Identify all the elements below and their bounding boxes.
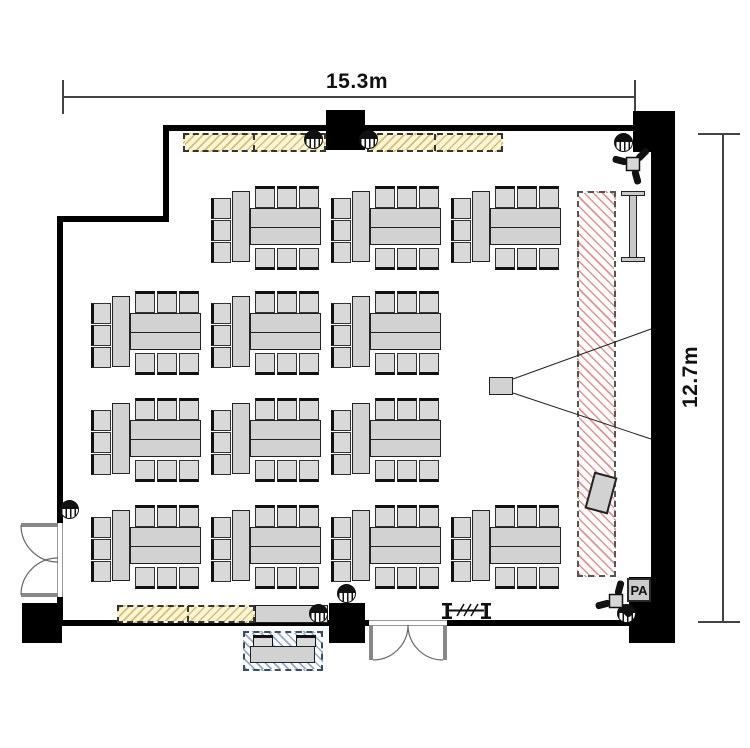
head-table: [112, 510, 130, 581]
chair: [91, 325, 111, 346]
chair: [451, 198, 471, 219]
chair: [419, 460, 439, 482]
chair: [179, 460, 199, 482]
chair: [397, 398, 417, 420]
long-table: [250, 420, 321, 457]
chair: [255, 505, 275, 527]
column-top-right: [633, 111, 675, 152]
table-divider: [251, 227, 320, 229]
table-group-5: [211, 291, 321, 375]
chair: [277, 291, 297, 313]
table-group-3: [451, 186, 561, 270]
chair: [539, 186, 559, 208]
chair: [135, 505, 155, 527]
chair: [179, 353, 199, 375]
table-divider: [131, 439, 200, 441]
chair: [211, 432, 231, 453]
chair: [255, 398, 275, 420]
chair: [211, 242, 231, 263]
table-group-10: [91, 505, 201, 589]
chair: [299, 567, 319, 589]
chair: [135, 398, 155, 420]
chair: [255, 353, 275, 375]
chair: [331, 220, 351, 241]
chair: [179, 505, 199, 527]
wall-top-left-step-vertical: [163, 125, 169, 222]
head-table: [232, 191, 250, 262]
chair: [299, 248, 319, 270]
chair: [179, 291, 199, 313]
wall-left-upper: [57, 216, 63, 523]
wall-top-left-step-horizontal: [57, 216, 169, 222]
chair: [419, 398, 439, 420]
chair: [331, 198, 351, 219]
chair: [517, 248, 537, 270]
chair: [375, 460, 395, 482]
chair: [419, 291, 439, 313]
chair: [179, 567, 199, 589]
chair: [451, 242, 471, 263]
chair: [91, 303, 111, 324]
chair: [91, 454, 111, 475]
chair: [331, 517, 351, 538]
table-divider: [371, 227, 440, 229]
chair: [299, 505, 319, 527]
chair: [211, 220, 231, 241]
head-table: [232, 296, 250, 367]
chair: [91, 432, 111, 453]
bottom-door-leaf: [369, 625, 373, 660]
storage-divider: [187, 606, 189, 622]
chair: [375, 186, 395, 208]
chair: [451, 539, 471, 560]
long-table: [250, 208, 321, 245]
screen-bottom-cap: [621, 257, 645, 262]
chair: [135, 460, 155, 482]
head-table: [352, 510, 370, 581]
chair: [419, 505, 439, 527]
table-divider: [251, 546, 320, 548]
chair: [299, 398, 319, 420]
chair: [539, 248, 559, 270]
chair: [277, 186, 297, 208]
chair: [211, 517, 231, 538]
bottom-door-frame: [369, 620, 447, 626]
chair: [331, 432, 351, 453]
chair: [539, 567, 559, 589]
table-group-4: [91, 291, 201, 375]
chair: [397, 291, 417, 313]
chair: [211, 539, 231, 560]
chair: [331, 410, 351, 431]
ceiling-light-icon: [309, 604, 328, 623]
long-table: [370, 527, 441, 564]
left-door-leaf: [21, 523, 58, 527]
chair: [157, 291, 177, 313]
long-table: [130, 420, 201, 457]
chair: [331, 325, 351, 346]
bottom-door-leaf: [443, 625, 447, 660]
long-table: [250, 313, 321, 350]
chair: [157, 460, 177, 482]
head-table: [472, 510, 490, 581]
chair: [211, 347, 231, 368]
left-door-leaf: [21, 593, 58, 597]
head-table: [112, 296, 130, 367]
table-divider: [371, 332, 440, 334]
chair: [539, 505, 559, 527]
width-dimension-tick-left: [62, 80, 64, 114]
chair: [135, 567, 155, 589]
stage-area: [577, 191, 616, 577]
chair: [135, 291, 155, 313]
storage-divider: [434, 134, 436, 151]
chair: [419, 248, 439, 270]
chair: [375, 398, 395, 420]
chair: [255, 186, 275, 208]
column-bottom-center: [329, 603, 365, 643]
ceiling-light-icon: [614, 133, 633, 152]
ceiling-light-icon: [617, 604, 636, 623]
chair: [277, 248, 297, 270]
long-table: [370, 420, 441, 457]
chair: [331, 242, 351, 263]
screen-bar: [629, 195, 637, 258]
chair: [211, 454, 231, 475]
table-group-2: [331, 186, 441, 270]
height-dimension-label: 12.7m: [679, 342, 703, 412]
chair: [397, 353, 417, 375]
chair: [211, 410, 231, 431]
storage-area-top-right: [367, 133, 503, 152]
chair: [495, 248, 515, 270]
chair: [157, 353, 177, 375]
height-dimension-line: [722, 133, 724, 622]
chair: [255, 291, 275, 313]
chair: [331, 303, 351, 324]
chair: [157, 505, 177, 527]
chair: [299, 353, 319, 375]
chair: [299, 186, 319, 208]
height-dimension-tick-top: [698, 133, 740, 135]
ceiling-light-icon: [304, 130, 323, 149]
long-table: [490, 208, 561, 245]
chair: [397, 186, 417, 208]
long-table: [370, 208, 441, 245]
long-table: [130, 313, 201, 350]
chair: [299, 460, 319, 482]
head-table: [352, 296, 370, 367]
long-table: [490, 527, 561, 564]
table-group-1: [211, 186, 321, 270]
chair: [397, 567, 417, 589]
table-divider: [371, 439, 440, 441]
chair: [179, 398, 199, 420]
chair: [495, 186, 515, 208]
chair: [375, 505, 395, 527]
height-dimension-tick-bottom: [698, 621, 740, 623]
chair: [91, 517, 111, 538]
chair: [135, 353, 155, 375]
table-divider: [371, 546, 440, 548]
wall-right: [651, 125, 675, 643]
chair: [211, 561, 231, 582]
column-bottom-left: [22, 603, 62, 643]
chair: [255, 567, 275, 589]
chair: [157, 567, 177, 589]
chair: [91, 410, 111, 431]
chair: [299, 291, 319, 313]
ceiling-light-icon: [337, 584, 356, 603]
head-table: [472, 191, 490, 262]
chair: [255, 248, 275, 270]
chair: [517, 505, 537, 527]
storage-area-bottom: [117, 605, 255, 623]
table-divider: [131, 546, 200, 548]
chair: [91, 561, 111, 582]
chair: [331, 454, 351, 475]
table-divider: [251, 332, 320, 334]
table-group-7: [91, 398, 201, 482]
chair: [211, 198, 231, 219]
chair: [419, 353, 439, 375]
chair: [211, 325, 231, 346]
chair: [451, 220, 471, 241]
reception-table: [250, 646, 315, 663]
head-table: [232, 510, 250, 581]
chair: [375, 353, 395, 375]
chair: [375, 248, 395, 270]
projector-icon: [489, 377, 513, 395]
table-divider: [251, 439, 320, 441]
chair: [91, 539, 111, 560]
chair: [419, 567, 439, 589]
storage-divider: [253, 134, 255, 151]
table-group-13: [451, 505, 561, 589]
chair: [397, 248, 417, 270]
long-table: [370, 313, 441, 350]
chair: [331, 561, 351, 582]
head-table: [352, 403, 370, 474]
chair: [331, 347, 351, 368]
ceiling-light-icon: [60, 500, 79, 519]
table-group-11: [211, 505, 321, 589]
chair: [277, 505, 297, 527]
table-group-6: [331, 291, 441, 375]
wall-top: [163, 125, 675, 131]
chair: [495, 567, 515, 589]
floor-plan: 15.3m 12.7m PA: [0, 0, 750, 748]
pa-speaker-label: PA: [627, 578, 651, 602]
table-divider: [131, 332, 200, 334]
chair: [277, 460, 297, 482]
chair: [419, 186, 439, 208]
head-table: [352, 191, 370, 262]
chair: [255, 460, 275, 482]
table-group-9: [331, 398, 441, 482]
partition-icon: [442, 603, 491, 619]
width-dimension-label: 15.3m: [287, 70, 427, 94]
chair: [517, 567, 537, 589]
chair: [211, 303, 231, 324]
chair: [277, 567, 297, 589]
table-group-12: [331, 505, 441, 589]
chair: [397, 505, 417, 527]
table-divider: [491, 546, 560, 548]
left-door-frame: [57, 523, 63, 597]
chair: [277, 353, 297, 375]
chair: [91, 347, 111, 368]
long-table: [130, 527, 201, 564]
long-table: [250, 527, 321, 564]
chair: [495, 505, 515, 527]
table-group-8: [211, 398, 321, 482]
width-dimension-tick-right: [634, 80, 636, 114]
chair: [397, 460, 417, 482]
chair: [157, 398, 177, 420]
chair: [277, 398, 297, 420]
chair: [375, 567, 395, 589]
chair: [331, 539, 351, 560]
chair: [375, 291, 395, 313]
chair: [451, 561, 471, 582]
head-table: [232, 403, 250, 474]
chair: [451, 517, 471, 538]
width-dimension-line: [62, 96, 635, 98]
head-table: [112, 403, 130, 474]
table-divider: [491, 227, 560, 229]
chair: [517, 186, 537, 208]
ceiling-light-icon: [359, 130, 378, 149]
